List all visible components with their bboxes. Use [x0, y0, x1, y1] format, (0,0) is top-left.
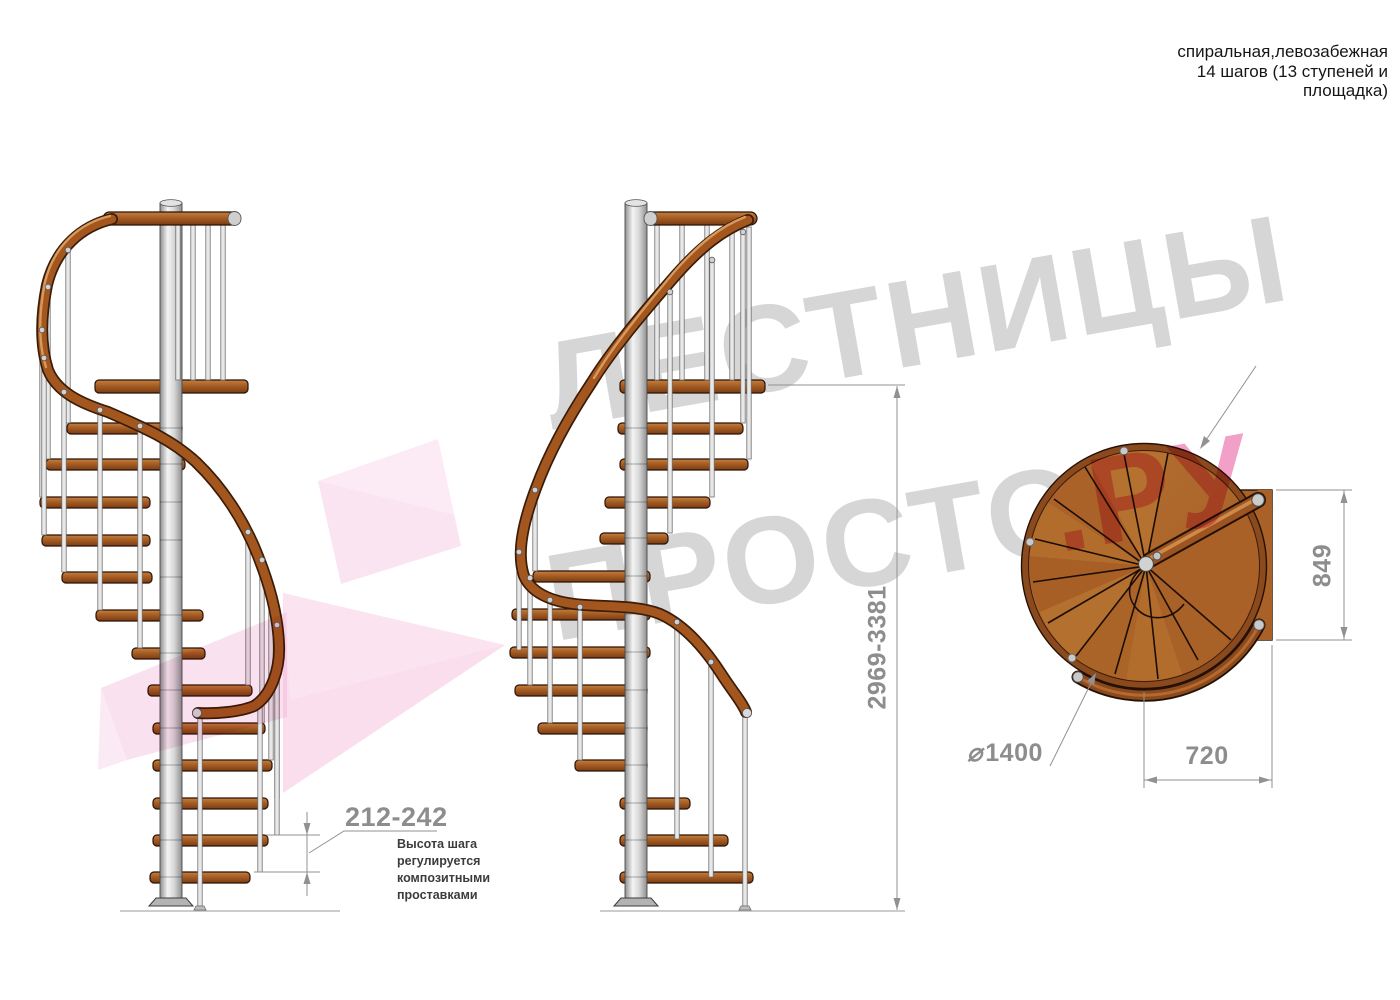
step-height-note: Высота шага регулируется композитными пр…	[397, 836, 490, 904]
title-line-1: спиральная,левозабежная	[1177, 42, 1388, 62]
drawing-sheet: ЛЕСТНИЦЫ ПРОСТО	[0, 0, 1400, 1000]
dim-total-height-label: 2969-3381	[864, 548, 893, 748]
dim-landing-width-label: 720	[1157, 742, 1257, 771]
treads	[40, 380, 272, 883]
note-line-2: регулируется	[397, 853, 490, 870]
dim-diameter-label: ⌀ 1400	[935, 738, 1075, 768]
drawing-title: спиральная,левозабежная 14 шагов (13 сту…	[1177, 42, 1388, 101]
handrail-end-cap	[742, 708, 751, 717]
front-elevation-view	[510, 200, 905, 911]
note-line-4: проставками	[397, 887, 490, 904]
note-line-1: Высота шага	[397, 836, 490, 853]
title-line-3: площадка)	[1177, 81, 1388, 101]
diameter-symbol: ⌀	[967, 739, 983, 767]
dim-step-height-label: 212-242	[345, 802, 448, 833]
pole-base-flange	[614, 898, 658, 906]
left-elevation-view	[39, 200, 340, 911]
note-line-3: композитными	[397, 870, 490, 887]
watermark-brand-suffix: .РУ	[1041, 414, 1264, 572]
handrail-end-cap	[228, 212, 241, 226]
pole-base-flange	[149, 898, 193, 906]
title-line-2: 14 шагов (13 ступеней и	[1177, 62, 1388, 82]
handrail-end-cap	[192, 708, 201, 717]
dim-landing-depth-label: 849	[1309, 466, 1338, 666]
diameter-value: 1400	[985, 739, 1043, 767]
handrail-end-cap	[644, 212, 657, 226]
